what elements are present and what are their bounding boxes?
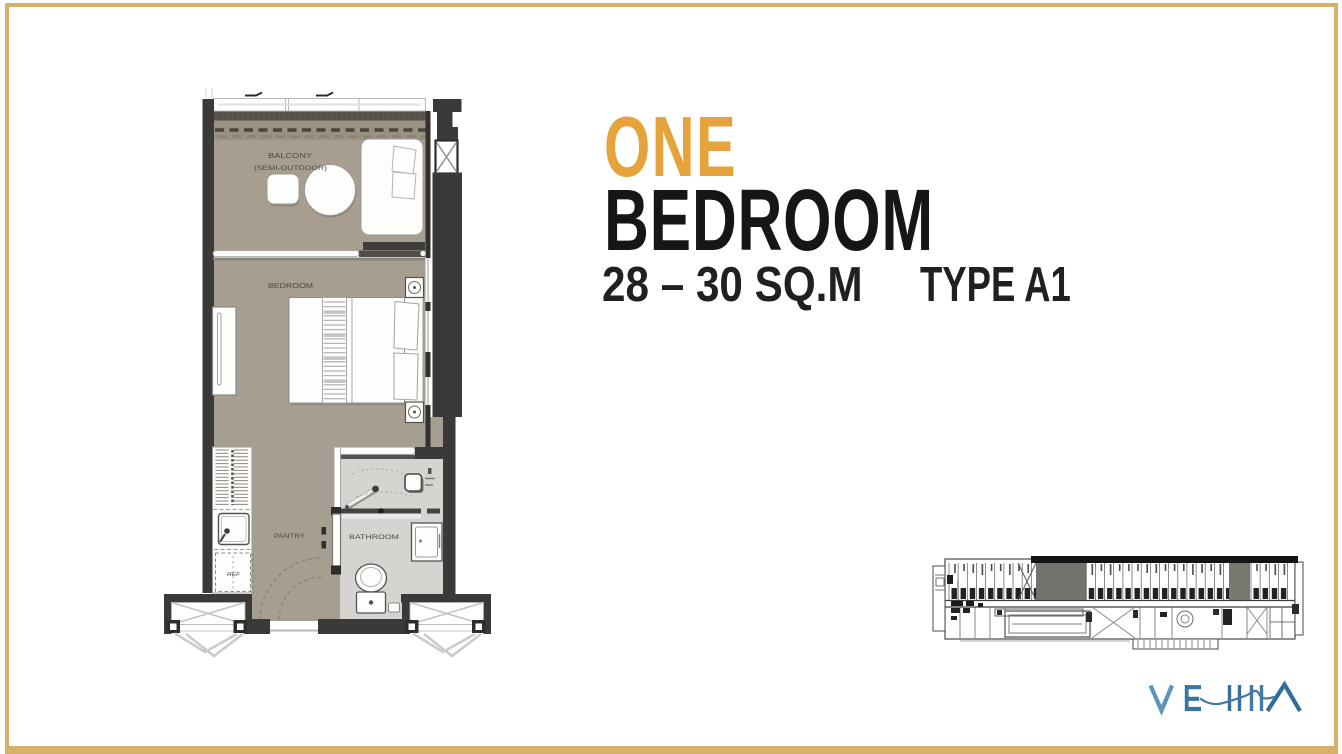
- svg-text:(SEMI-OUTDOOR): (SEMI-OUTDOOR): [254, 165, 327, 172]
- svg-text:BEDROOM: BEDROOM: [268, 283, 313, 290]
- svg-text:BATHROOM: BATHROOM: [349, 534, 399, 541]
- svg-text:BALCONY: BALCONY: [268, 153, 312, 160]
- svg-text:PANTRY: PANTRY: [274, 533, 306, 540]
- svg-text:REF: REF: [227, 572, 241, 578]
